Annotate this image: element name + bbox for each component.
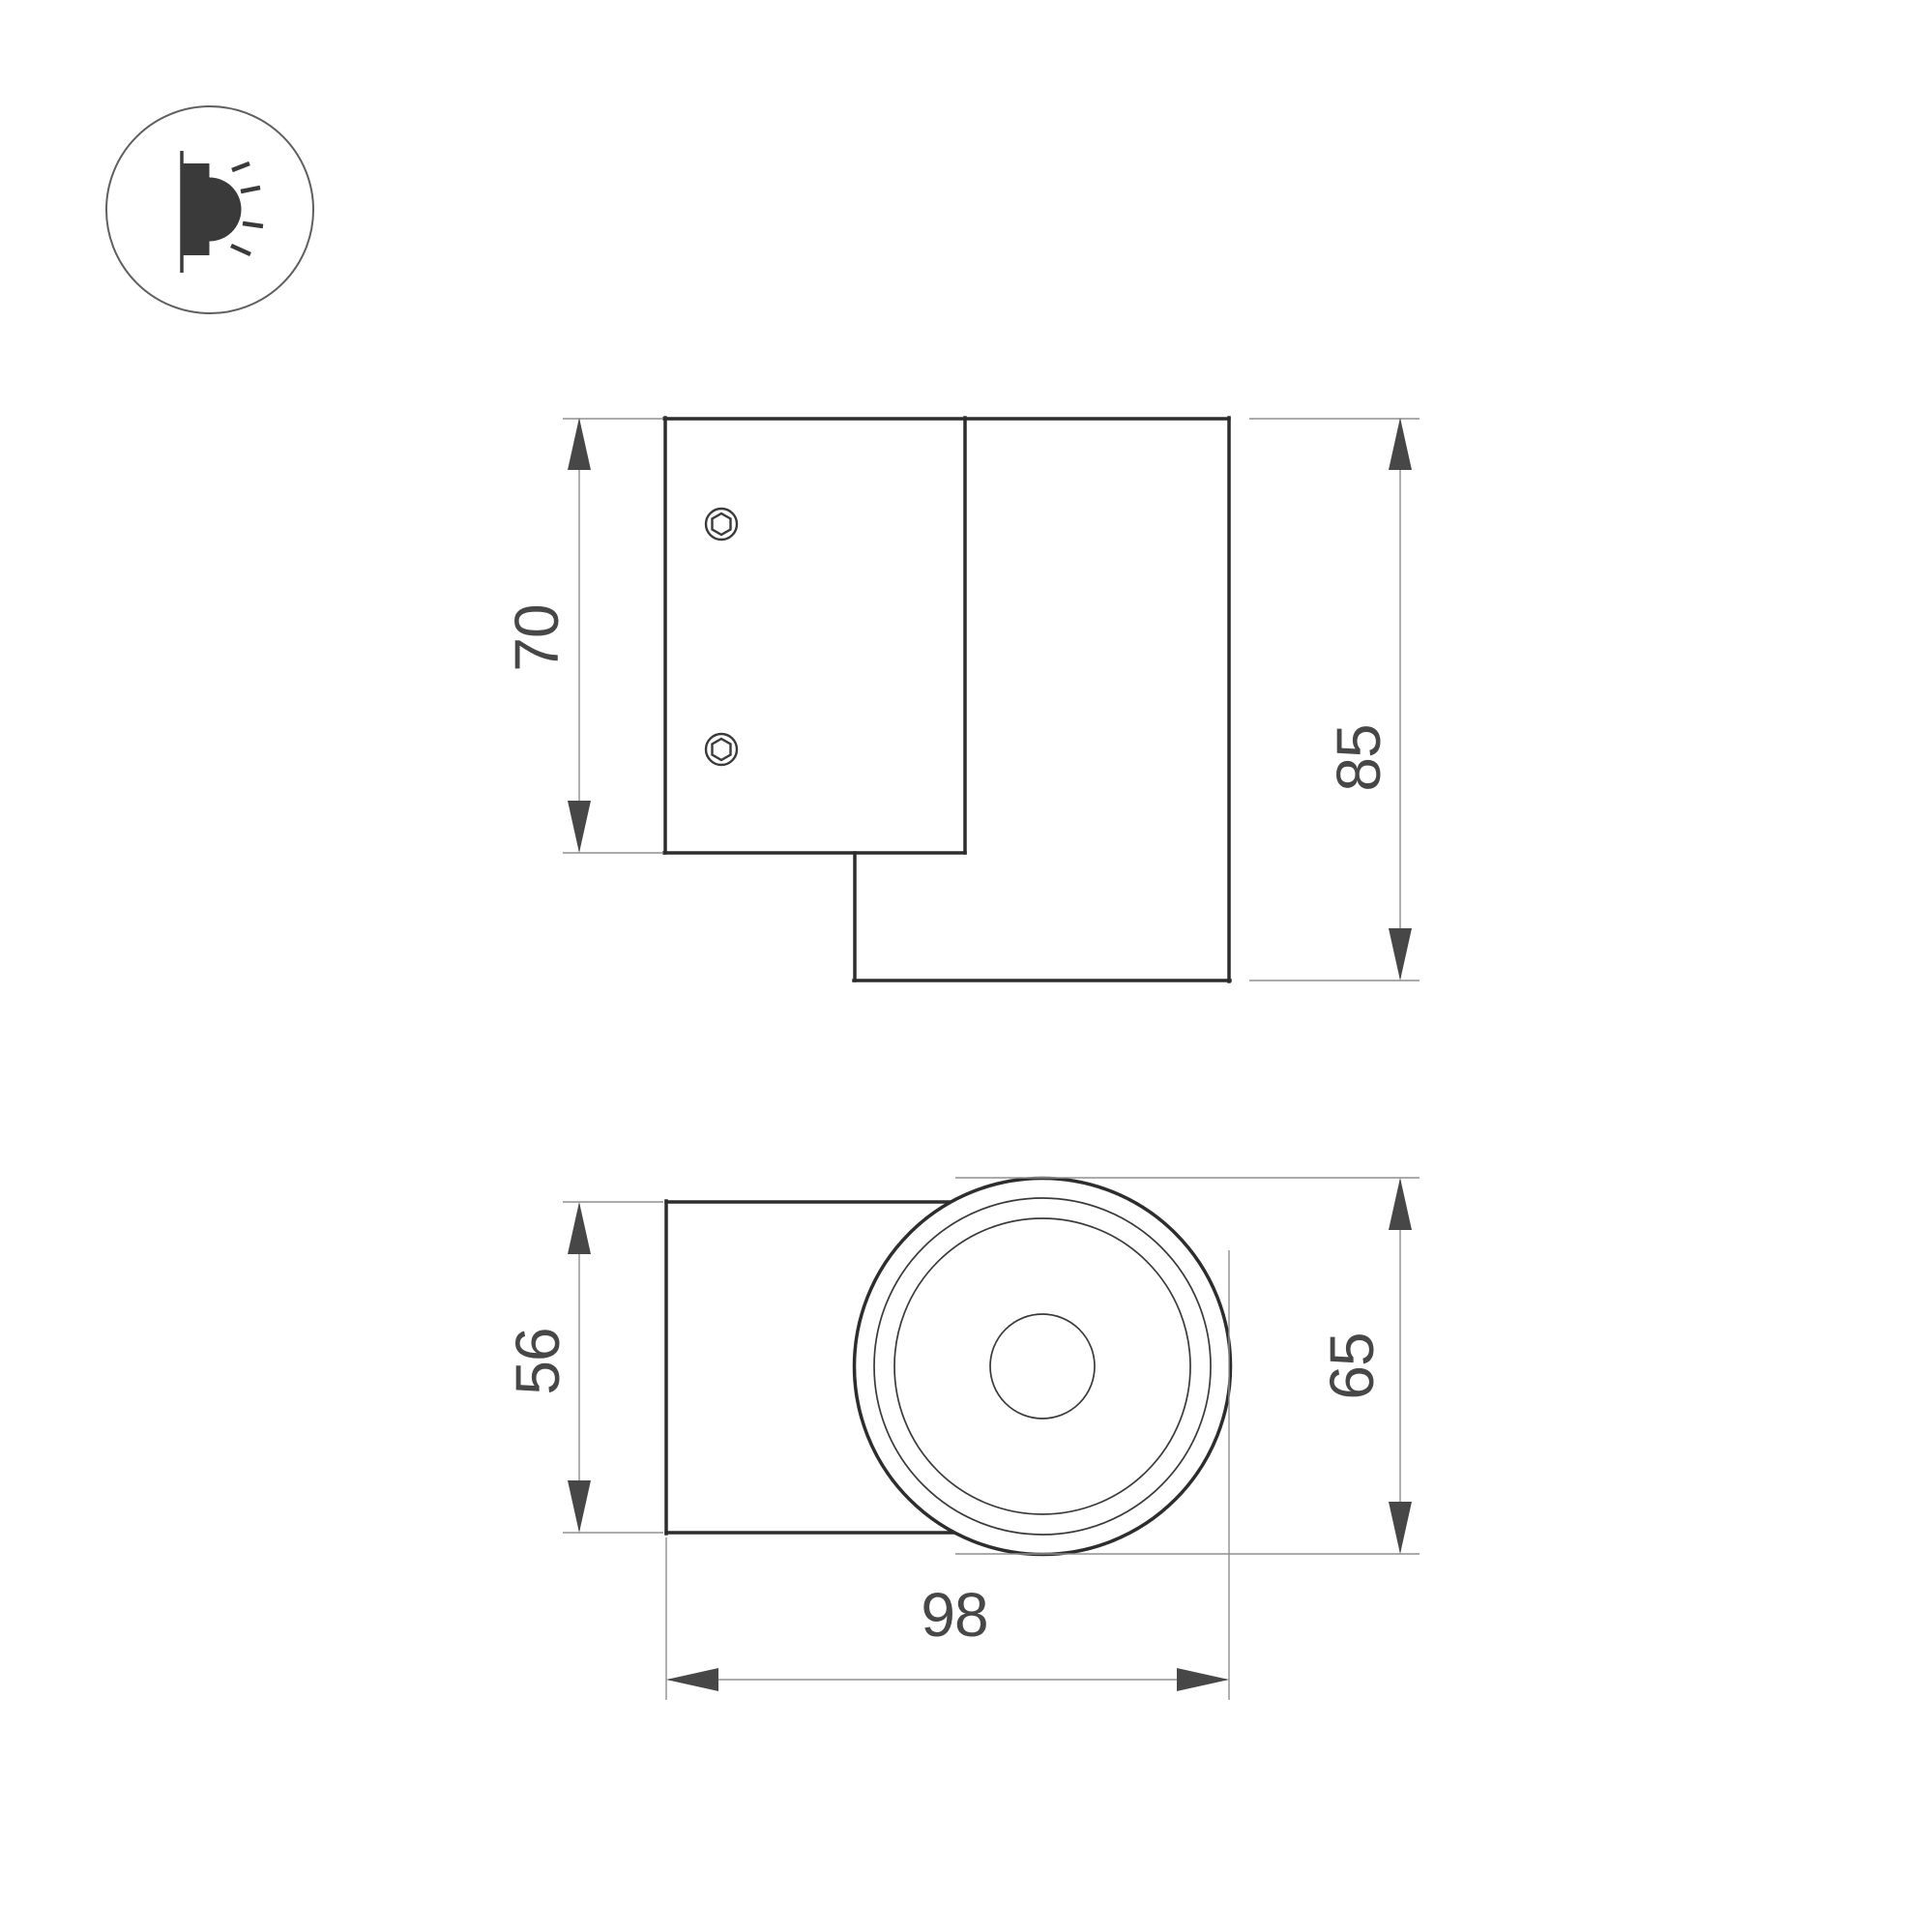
overall-height-dim-label: 85 [1324, 724, 1393, 791]
arrowhead-down-icon [568, 1480, 591, 1533]
light-ray-icon [241, 188, 260, 191]
arrowhead-up-icon [1389, 418, 1412, 470]
icon-lamp-body [184, 163, 210, 255]
bottom-view [666, 1179, 1231, 1555]
screw-icon [706, 509, 737, 540]
overall-depth-dim-label: 98 [921, 1580, 987, 1650]
arrowhead-right-icon [1177, 1668, 1229, 1691]
screw-hex-socket [713, 513, 731, 535]
arrowhead-left-icon [666, 1668, 718, 1691]
drawing-sheet: 70 85 56 [0, 0, 1932, 1932]
light-ray-icon [232, 163, 249, 170]
wall-light-icon [106, 106, 313, 313]
face-diameter-dim-label: 65 [1317, 1332, 1387, 1399]
dimension-56: 56 [503, 1202, 663, 1533]
screw-hex-socket [713, 739, 731, 760]
arrowhead-down-icon [1389, 1502, 1412, 1554]
lamp-face-outer-circle [855, 1179, 1231, 1555]
arrowhead-down-icon [1389, 928, 1412, 981]
dimension-70: 70 [502, 418, 663, 853]
screw-icon [706, 734, 737, 765]
side-view [664, 418, 1230, 981]
plate-height-dim-label: 70 [502, 604, 571, 671]
icon-lamp-lens [210, 178, 242, 242]
body-width-dim-label: 56 [503, 1328, 572, 1394]
dimension-85: 85 [1249, 418, 1420, 981]
arrowhead-down-icon [568, 801, 591, 853]
arrowhead-up-icon [568, 1202, 591, 1254]
light-ray-icon [231, 246, 250, 254]
light-ray-icon [243, 223, 263, 226]
arrowhead-up-icon [568, 418, 591, 470]
arrowhead-up-icon [1389, 1178, 1412, 1230]
dimension-drawing: 70 85 56 [0, 0, 1932, 1932]
